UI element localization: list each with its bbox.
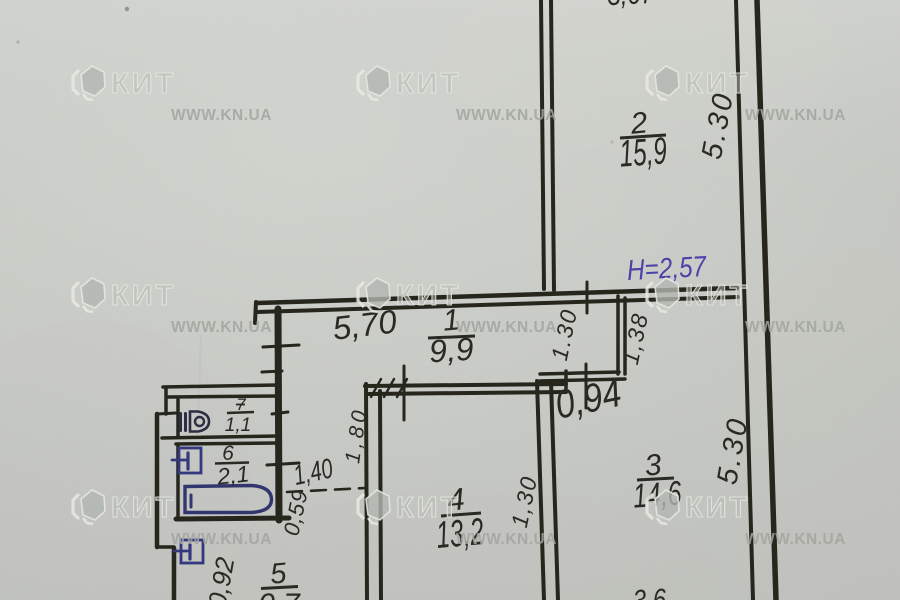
svg-text:9,9: 9,9 bbox=[428, 331, 475, 370]
svg-text:2,1: 2,1 bbox=[215, 460, 251, 489]
svg-text:0,7: 0,7 bbox=[258, 588, 301, 600]
svg-text:5,70: 5,70 bbox=[330, 302, 399, 347]
svg-text:3,6: 3,6 bbox=[632, 582, 668, 600]
svg-text:1,1: 1,1 bbox=[225, 415, 251, 436]
svg-text:15,9: 15,9 bbox=[618, 129, 668, 175]
